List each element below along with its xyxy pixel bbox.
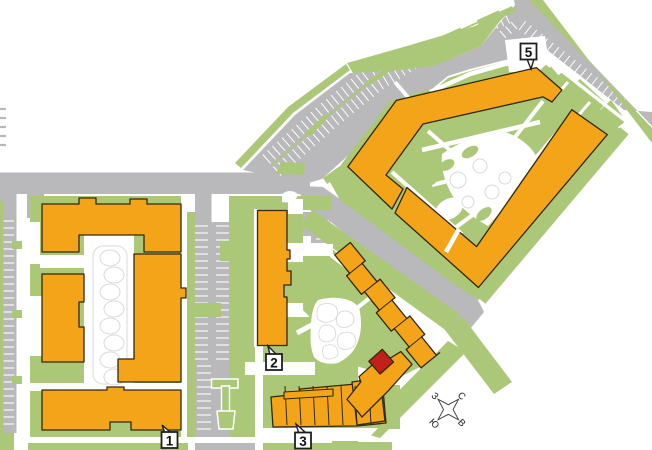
svg-text:1: 1 — [166, 434, 174, 449]
svg-text:3: 3 — [299, 434, 307, 449]
svg-text:5: 5 — [525, 45, 533, 60]
svg-text:2: 2 — [270, 356, 278, 371]
